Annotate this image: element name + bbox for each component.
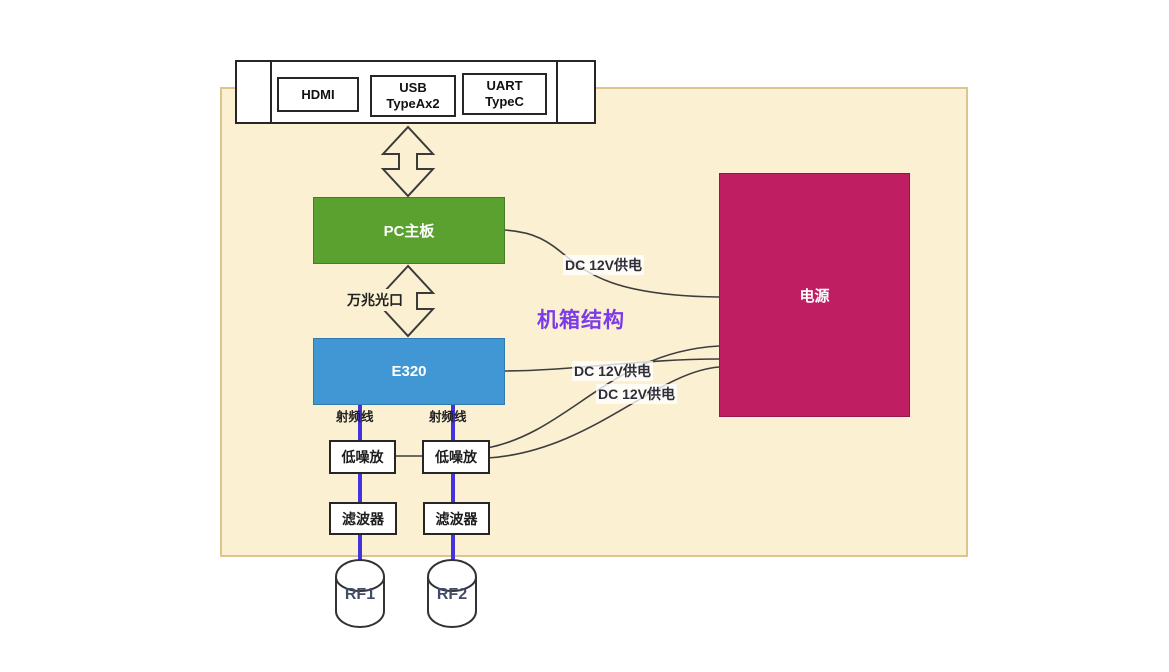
rf1-label: RF1	[336, 586, 384, 604]
port-hdmi-label: HDMI	[301, 87, 334, 103]
power-label: 电源	[799, 285, 829, 306]
pc-board-block: PC主板	[313, 197, 505, 264]
filter-left-label: 滤波器	[342, 509, 384, 529]
lna-left-block: 低噪放	[329, 440, 396, 474]
port-uart-label: UART TypeC	[485, 78, 524, 109]
port-usb-label: USB TypeAx2	[386, 80, 439, 111]
port-box-hdmi: HDMI	[277, 77, 359, 112]
filter-right-label: 滤波器	[436, 509, 478, 529]
lna-right-label: 低噪放	[435, 447, 477, 467]
port-box-usb: USB TypeAx2	[370, 75, 456, 117]
filter-right-block: 滤波器	[423, 502, 490, 535]
optical-link-label: 万兆光口	[344, 289, 406, 311]
port-box-uart: UART TypeC	[462, 73, 547, 115]
lna-left-label: 低噪放	[342, 447, 384, 467]
dc-power-label-2: DC 12V供电	[572, 361, 653, 381]
filter-left-block: 滤波器	[329, 502, 397, 535]
rf-cable-label-left: 射频线	[336, 406, 374, 425]
e320-label: E320	[391, 363, 426, 380]
rf-cable-label-right: 射频线	[429, 406, 467, 425]
rf2-label: RF2	[428, 586, 476, 604]
ports-bar-divider-right	[556, 60, 558, 124]
dc-power-label-3: DC 12V供电	[596, 384, 677, 404]
chassis-title: 机箱结构	[537, 304, 625, 334]
lna-right-block: 低噪放	[422, 440, 490, 474]
power-block: 电源	[719, 173, 910, 417]
dc-power-label-1: DC 12V供电	[563, 255, 644, 275]
diagram-canvas: HDMI USB TypeAx2 UART TypeC PC主板 E320 电源…	[0, 0, 1169, 672]
ports-bar-divider-left	[270, 60, 272, 124]
e320-block: E320	[313, 338, 505, 405]
pc-board-label: PC主板	[384, 220, 435, 241]
